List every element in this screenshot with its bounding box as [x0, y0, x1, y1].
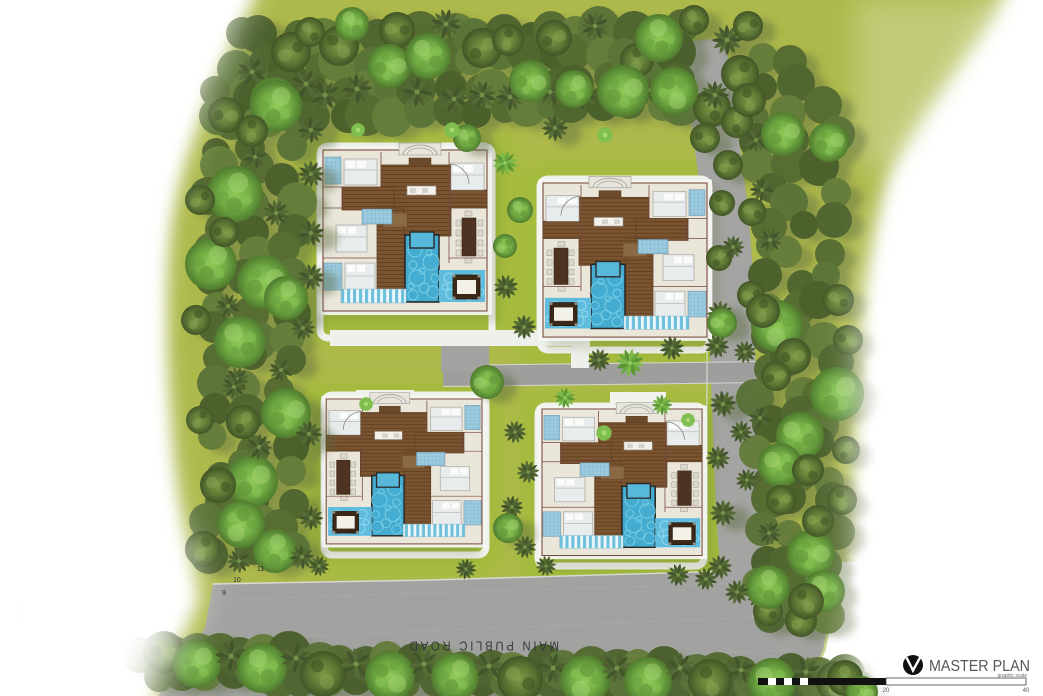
svg-text:9: 9: [222, 590, 226, 597]
svg-text:10: 10: [233, 577, 241, 584]
svg-text:11: 11: [257, 566, 264, 573]
svg-text:40: 40: [1023, 688, 1030, 694]
svg-text:MAIN PUBLIC ROAD: MAIN PUBLIC ROAD: [407, 639, 559, 653]
svg-text:20: 20: [883, 688, 890, 694]
